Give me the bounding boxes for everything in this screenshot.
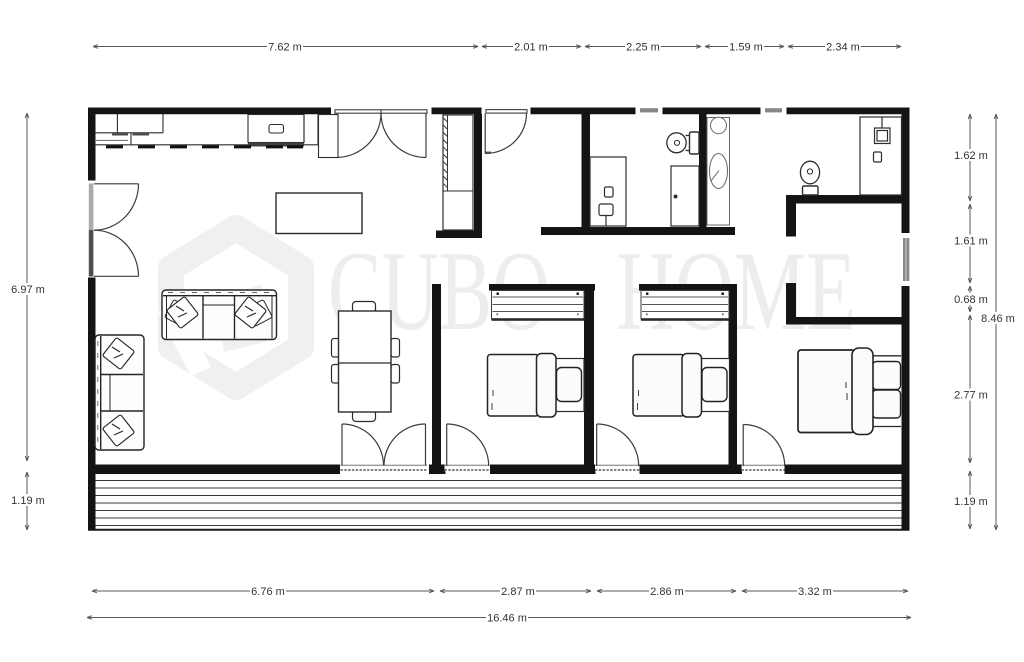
svg-text:2.34 m: 2.34 m — [826, 41, 860, 53]
svg-text:16.46 m: 16.46 m — [487, 612, 527, 624]
svg-text:6.76 m: 6.76 m — [251, 586, 285, 598]
svg-text:2.86 m: 2.86 m — [650, 586, 684, 598]
svg-text:2.87 m: 2.87 m — [501, 586, 535, 598]
svg-text:1.19 m: 1.19 m — [11, 495, 45, 507]
svg-text:1.61 m: 1.61 m — [954, 235, 988, 247]
svg-text:1.19 m: 1.19 m — [954, 496, 988, 508]
svg-text:8.46 m: 8.46 m — [981, 313, 1015, 325]
svg-text:7.62 m: 7.62 m — [268, 41, 302, 53]
svg-text:2.77 m: 2.77 m — [954, 389, 988, 401]
svg-text:2.01 m: 2.01 m — [514, 41, 548, 53]
svg-text:1.62 m: 1.62 m — [954, 150, 988, 162]
svg-text:6.97 m: 6.97 m — [11, 284, 45, 296]
svg-text:0.68 m: 0.68 m — [954, 294, 988, 306]
svg-text:2.25 m: 2.25 m — [626, 41, 660, 53]
svg-text:3.32 m: 3.32 m — [798, 586, 832, 598]
svg-text:1.59 m: 1.59 m — [729, 41, 763, 53]
